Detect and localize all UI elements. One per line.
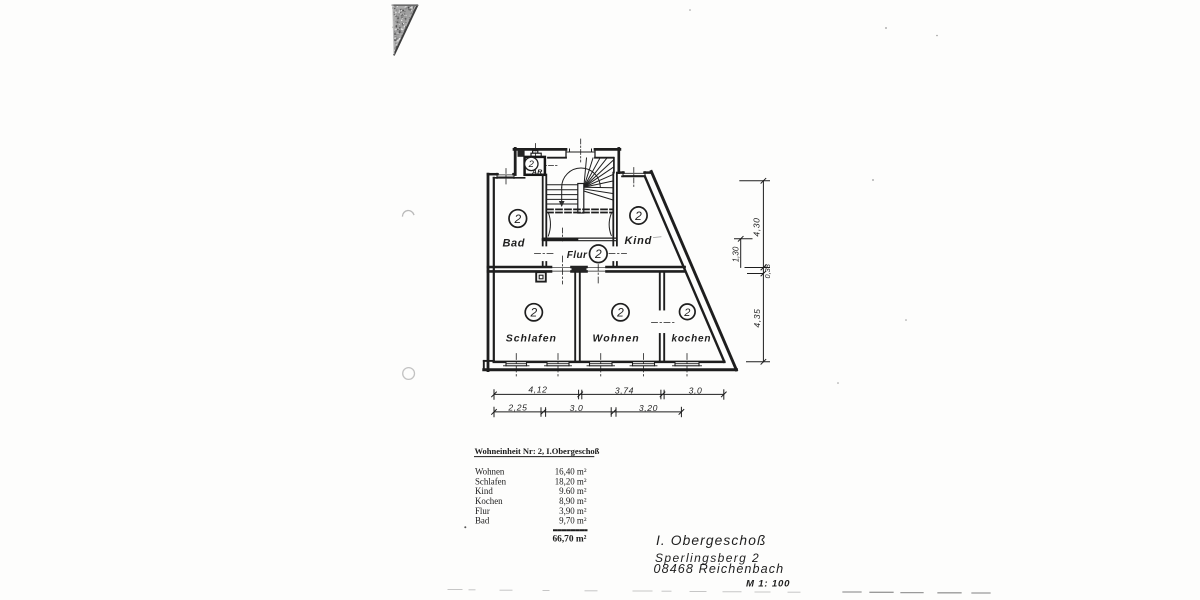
svg-text:8,90 m²: 8,90 m² xyxy=(559,496,587,506)
svg-text:9.60 m²: 9.60 m² xyxy=(559,486,587,496)
svg-text:2: 2 xyxy=(529,306,537,320)
svg-text:Kind: Kind xyxy=(625,235,653,247)
svg-text:Wohnen: Wohnen xyxy=(475,467,505,477)
svg-text:4,30: 4,30 xyxy=(752,217,762,236)
svg-text:2: 2 xyxy=(683,307,690,319)
svg-text:18,20 m²: 18,20 m² xyxy=(555,476,587,486)
svg-text:3,0: 3,0 xyxy=(689,386,703,396)
svg-text:I. Obergeschoß: I. Obergeschoß xyxy=(656,533,767,548)
svg-text:3,20: 3,20 xyxy=(639,403,658,413)
svg-text:3,90 m²: 3,90 m² xyxy=(559,506,587,516)
svg-text:3,74: 3,74 xyxy=(615,386,634,396)
svg-text:4,35: 4,35 xyxy=(752,308,762,327)
svg-text:AR: AR xyxy=(531,169,543,176)
svg-text:66,70 m²: 66,70 m² xyxy=(552,535,586,545)
svg-text:16,40 m²: 16,40 m² xyxy=(555,467,587,477)
svg-text:M 1: 100: M 1: 100 xyxy=(746,578,790,589)
svg-text:Bad: Bad xyxy=(475,516,490,526)
svg-text:Wohneinheit Nr: 2, I.Obergesch: Wohneinheit Nr: 2, I.Obergeschoß xyxy=(475,446,600,456)
svg-text:Bad: Bad xyxy=(503,237,526,249)
svg-text:2,25: 2,25 xyxy=(507,402,527,412)
svg-text:Flur: Flur xyxy=(475,506,490,516)
svg-text:9,70 m²: 9,70 m² xyxy=(559,516,587,526)
svg-text:3,0: 3,0 xyxy=(570,403,584,413)
svg-text:4,12: 4,12 xyxy=(528,385,547,395)
svg-text:2: 2 xyxy=(513,212,521,226)
svg-text:Schlafen: Schlafen xyxy=(475,476,507,486)
svg-text:kochen: kochen xyxy=(672,334,712,345)
svg-text:Flur: Flur xyxy=(567,250,588,261)
svg-text:Kind: Kind xyxy=(475,486,493,496)
svg-text:Wohnen: Wohnen xyxy=(593,333,640,345)
svg-text:1,30: 1,30 xyxy=(731,246,740,262)
svg-text:08468 Reichenbach: 08468 Reichenbach xyxy=(654,562,785,576)
svg-text:0,38: 0,38 xyxy=(763,263,772,278)
svg-text:Kochen: Kochen xyxy=(475,496,503,506)
svg-text:Schlafen: Schlafen xyxy=(506,333,557,345)
svg-text:2: 2 xyxy=(594,247,602,261)
svg-text:2: 2 xyxy=(634,209,642,223)
svg-text:2: 2 xyxy=(616,306,624,320)
